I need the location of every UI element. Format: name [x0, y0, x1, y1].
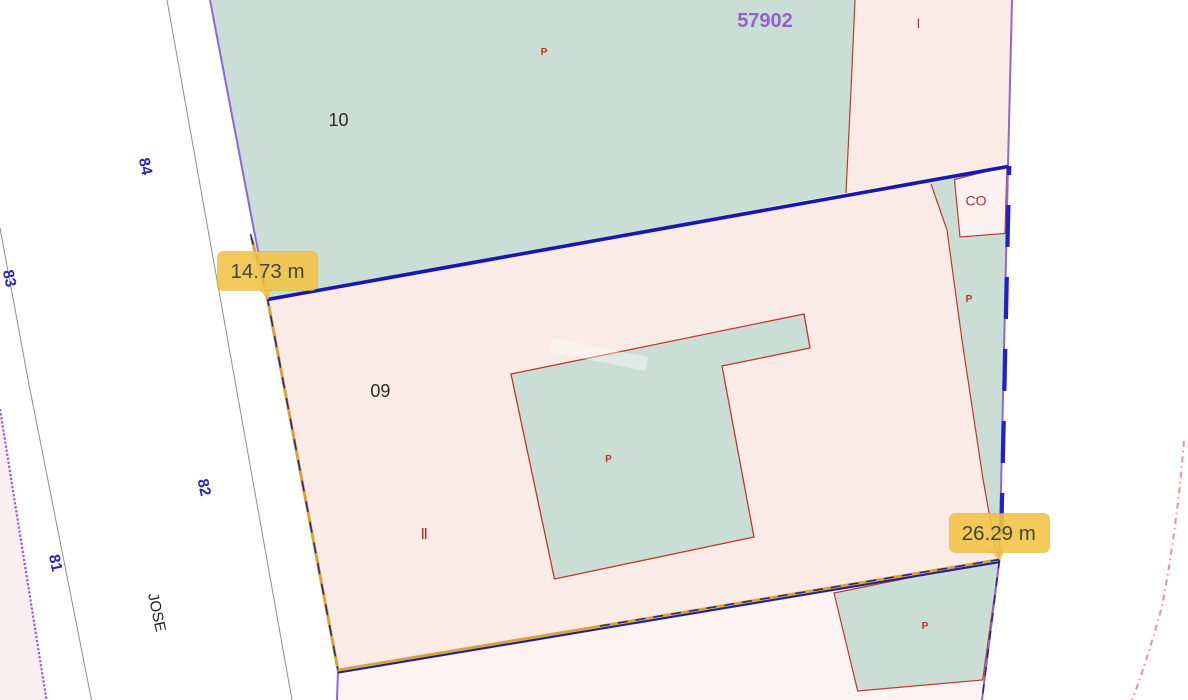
- svg-text:26.29 m: 26.29 m: [962, 522, 1036, 545]
- svg-text:82: 82: [194, 477, 214, 497]
- svg-text:14.73 m: 14.73 m: [230, 260, 304, 283]
- svg-text:57902: 57902: [737, 10, 793, 32]
- svg-text:09: 09: [370, 381, 390, 401]
- svg-text:P: P: [605, 454, 612, 465]
- svg-text:10: 10: [328, 110, 348, 130]
- svg-text:P: P: [966, 294, 973, 305]
- svg-text:I: I: [917, 15, 921, 31]
- svg-text:CO: CO: [966, 193, 987, 209]
- svg-text:P: P: [541, 47, 548, 58]
- svg-text:P: P: [922, 621, 929, 632]
- svg-text:II: II: [421, 526, 427, 543]
